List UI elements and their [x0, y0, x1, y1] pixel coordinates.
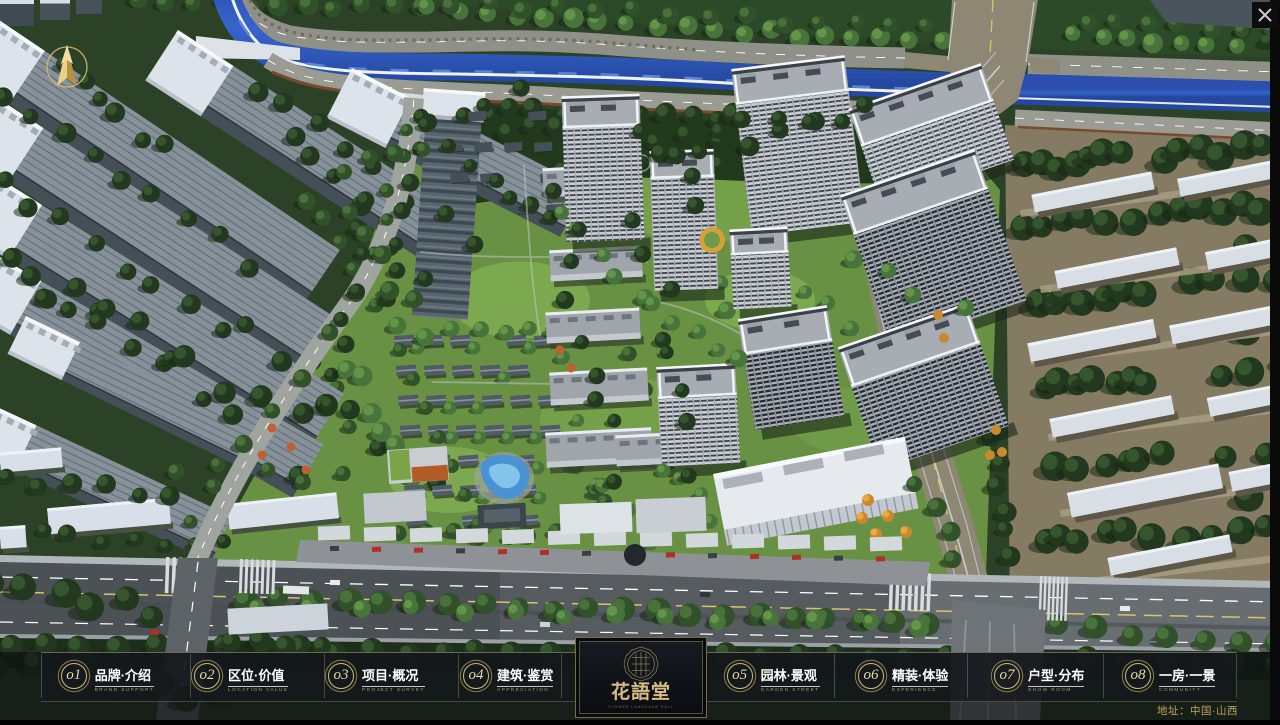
svg-text:FLOWER LANGUAGE HALL: FLOWER LANGUAGE HALL	[608, 705, 673, 709]
svg-text:花語堂: 花語堂	[611, 680, 671, 703]
